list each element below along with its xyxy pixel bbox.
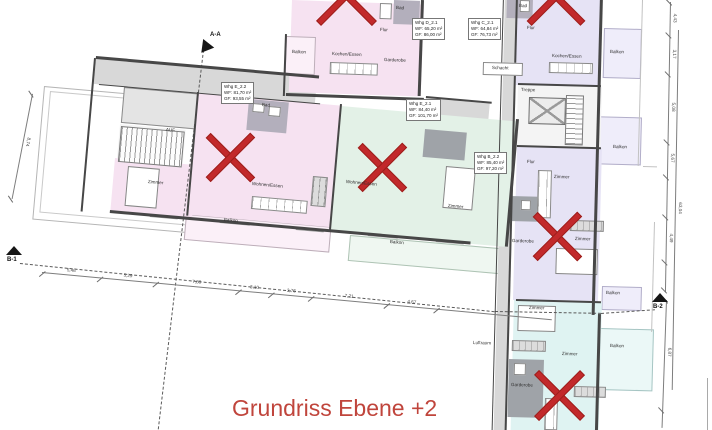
room-label: Schacht: [492, 66, 509, 71]
page-title: Grundriss Ebene +2: [232, 395, 437, 422]
section-arrow-icon: [652, 293, 668, 302]
floorplan-canvas: A-A B-1 B-2 Grundriss Ebene +2 BalkonZim…: [0, 0, 712, 430]
roof-outline-right-2: [651, 222, 655, 332]
apartment-info-box: Whg C_2.1WF: 64,84 m²GF: 76,73 m²: [468, 18, 501, 40]
kitchen-C_2.1: [549, 62, 593, 74]
dim-tick: [666, 32, 672, 38]
fixture-bath-B_2.2: [521, 200, 531, 210]
room-label: Bad: [396, 6, 404, 11]
balcony-A_2.1: [598, 328, 654, 391]
room-label: Garderobe: [511, 383, 533, 388]
wardrobe-E_2.1: [310, 176, 328, 207]
fixture-bath-D_2.1: [379, 3, 392, 19]
dim-tick: [664, 139, 670, 145]
dim-tick: [39, 271, 46, 277]
dim-right-lower: 6,87: [662, 300, 667, 428]
page-edge-right: [707, 378, 708, 430]
apartment-gf-text: GF: 93,55 m²: [224, 96, 251, 102]
room-label: Balkon: [610, 50, 624, 55]
room-label: Zimmer: [562, 352, 578, 357]
room-label: Zimmer: [554, 175, 570, 180]
sold-x-mark-icon: [536, 371, 584, 419]
dim-label: 4,43: [672, 14, 677, 23]
dim-label: 63,04: [677, 202, 682, 214]
room-label: Flur: [527, 160, 535, 165]
kitchen-B_2.2: [537, 170, 552, 218]
dim-tick: [665, 71, 671, 77]
dim-tick: [433, 307, 440, 313]
room-label: Garderobe: [512, 239, 534, 244]
stairs-right: [565, 95, 584, 145]
dim-label: 7,21: [344, 294, 353, 299]
room-label: Garderobe: [384, 58, 406, 63]
dim-label: 3,17: [671, 50, 676, 59]
room-label: Flur: [527, 26, 535, 31]
apartment-wf-text: WF: 85,40 m²: [477, 160, 504, 166]
dim-label: 3,76: [287, 289, 296, 294]
dim-tick: [152, 281, 159, 287]
dim-bottom: 5,465,297,803,103,767,214,67: [42, 272, 552, 320]
dim-tick: [662, 259, 668, 265]
dim-tick: [268, 292, 275, 298]
dim-left: 8,74: [12, 94, 33, 199]
fixture-bath-A_2.1: [514, 363, 526, 375]
bed-E_2.2: [125, 166, 160, 209]
room-label: Treppe: [521, 88, 536, 93]
apartment-gf-text: GF: 76,73 m²: [471, 32, 498, 38]
dim-tick: [663, 214, 669, 220]
dim-label: 4,67: [407, 300, 416, 305]
dim-label: 6,87: [666, 348, 671, 357]
section-marker-b-2-label: B-2: [653, 304, 663, 310]
dim-right-total: 63,04: [672, 30, 679, 390]
dim-tick: [383, 303, 390, 309]
sold-x-mark-icon: [207, 134, 253, 180]
section-arrow-icon: [6, 246, 22, 255]
section-marker-a-a-label: A-A: [210, 32, 221, 38]
dim-label: 3,10: [250, 285, 259, 290]
apartment-info-box: Whg B_2.2WF: 85,40 m²GF: 97,20 m²: [474, 152, 507, 174]
dim-tick: [308, 296, 315, 302]
dim-tick: [8, 196, 13, 203]
fixture-bath-E_2.2-b: [268, 106, 281, 117]
section-marker-b-1-label: B-1: [7, 257, 17, 263]
section-arrow-icon: [196, 39, 214, 57]
dim-label: 8,74: [24, 137, 30, 147]
shower-E_2.1: [423, 129, 467, 161]
dim-tick: [235, 289, 242, 295]
apartment-wf-text: WF: 65,20 m²: [415, 26, 442, 32]
dim-right-upper: 4,433,175,085,674,49: [665, 2, 671, 292]
room-label: Balkon: [292, 50, 306, 55]
apartment-gf-text: GF: 97,20 m²: [477, 166, 504, 172]
dim-label: 5,67: [670, 154, 675, 163]
dim-tick: [666, 0, 672, 6]
apartment-info-box: Whg E_2.1WF: 84,40 m²GF: 101,70 m²: [406, 99, 441, 121]
room-label: Bad: [262, 103, 271, 108]
dim-tick: [663, 174, 669, 180]
roof-outline-right-3: [643, 166, 657, 167]
room-label: Balkon: [610, 344, 624, 349]
apartment-info-box: Whg E_2.2WF: 81,70 m²GF: 93,55 m²: [221, 82, 254, 104]
apartment-wf-text: WF: 64,84 m²: [471, 26, 498, 32]
dim-label: 4,49: [668, 234, 673, 243]
room-label: Zimmer: [575, 237, 591, 242]
apartment-info-box: Whg D_2.1WF: 65,20 m²GF: 86,00 m²: [412, 18, 445, 40]
room-label: Luftraum: [473, 341, 491, 346]
dim-tick: [97, 276, 104, 282]
apartment-gf-text: GF: 86,00 m²: [415, 32, 442, 38]
dim-tick: [29, 91, 34, 98]
sold-x-mark-icon: [534, 213, 580, 259]
dim-label: 5,29: [123, 274, 132, 279]
room-label: Balkon: [613, 145, 627, 150]
dim-label: 7,80: [192, 280, 201, 285]
room-label: Flur: [380, 28, 388, 33]
kitchen-D_2.1: [330, 62, 378, 76]
apartment-wf-text: WF: 84,40 m²: [409, 107, 438, 113]
sold-x-mark-icon: [317, 0, 375, 24]
room-label: Balkon: [606, 291, 620, 296]
room-label: AUF: [166, 128, 176, 133]
elevator: [528, 97, 566, 125]
balcony-room-D_2.1: [285, 36, 316, 75]
room-label: Kochen/Essen: [552, 54, 582, 59]
sold-x-mark-icon: [528, 0, 584, 24]
room-label: Bad: [519, 4, 527, 9]
wardrobe-A_2.1-a: [512, 340, 546, 352]
room-label: Kochen/Essen: [332, 52, 362, 58]
room-label: Zimmer: [529, 306, 545, 311]
dim-tick: [659, 407, 665, 414]
dim-label: 5,46: [67, 268, 76, 273]
dim-label: 5,08: [670, 103, 675, 112]
apartment-wf-text: WF: 81,70 m²: [224, 90, 251, 96]
apartment-gf-text: GF: 101,70 m²: [409, 113, 438, 119]
